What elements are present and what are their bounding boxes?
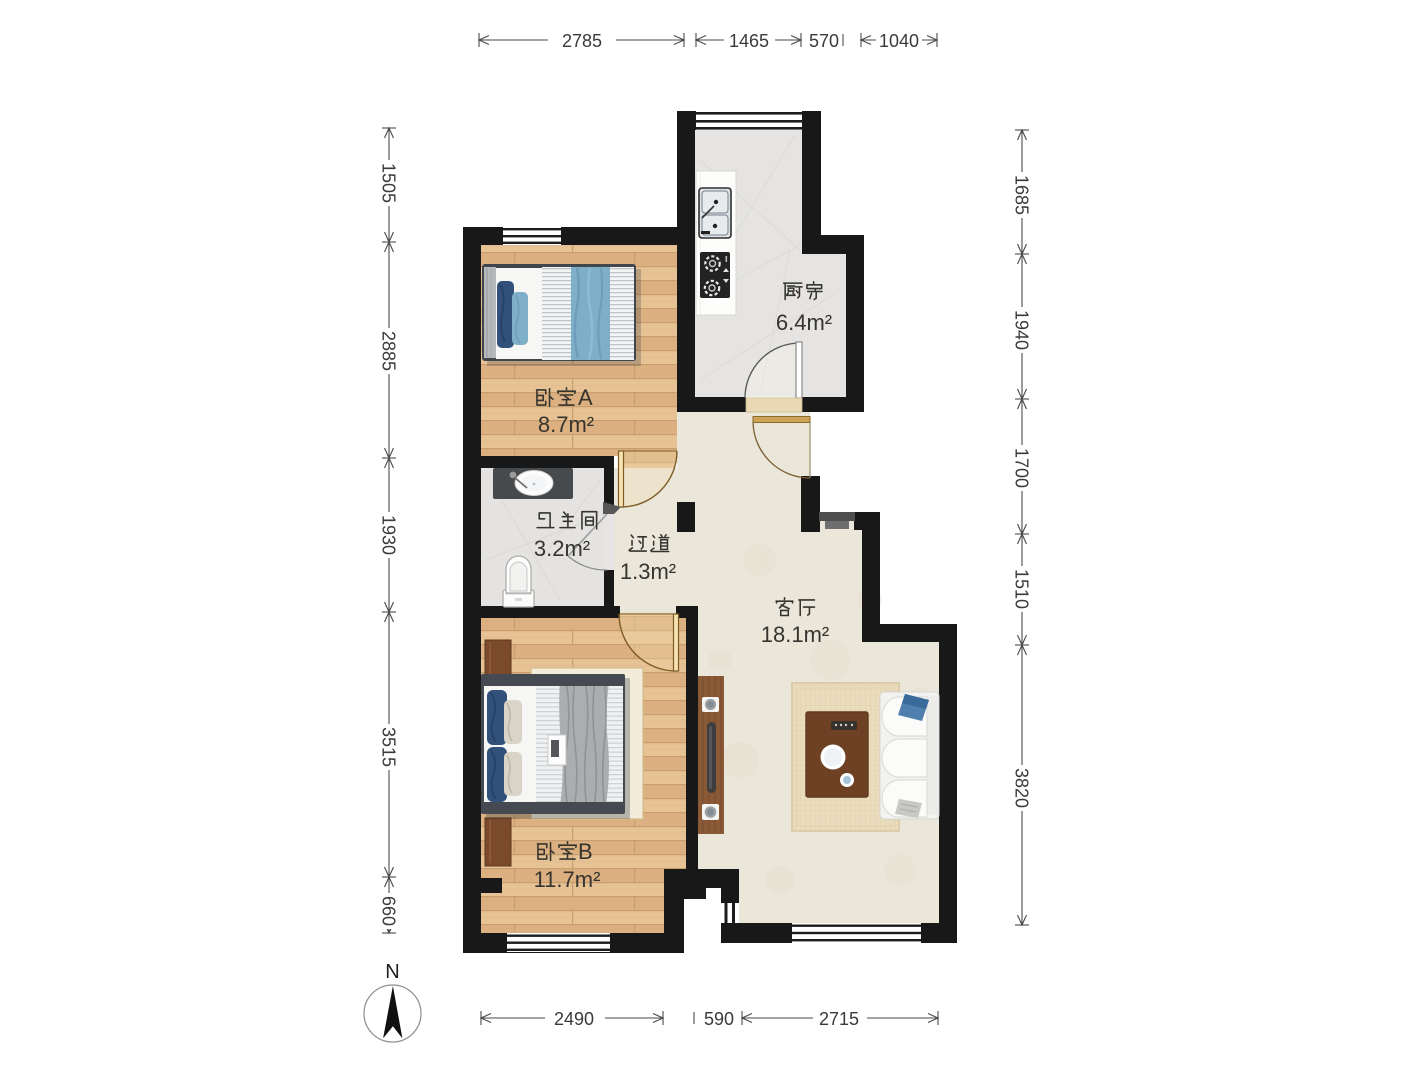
svg-text:1040: 1040 xyxy=(879,31,919,51)
svg-text:3820: 3820 xyxy=(1012,768,1032,808)
svg-text:11.7m²: 11.7m² xyxy=(534,867,601,892)
svg-text:1465: 1465 xyxy=(729,31,769,51)
svg-text:2885: 2885 xyxy=(379,331,399,371)
svg-text:1700: 1700 xyxy=(1012,448,1032,488)
svg-text:2490: 2490 xyxy=(554,1009,594,1029)
svg-text:570: 570 xyxy=(809,31,839,51)
svg-text:18.1m²: 18.1m² xyxy=(761,622,829,647)
svg-text:8.7m²: 8.7m² xyxy=(538,412,594,437)
svg-text:2785: 2785 xyxy=(562,31,602,51)
svg-text:6.4m²: 6.4m² xyxy=(776,310,832,335)
svg-text:1.3m²: 1.3m² xyxy=(620,559,676,584)
svg-text:3.2m²: 3.2m² xyxy=(534,536,590,561)
svg-text:1930: 1930 xyxy=(379,515,399,555)
svg-text:590: 590 xyxy=(704,1009,734,1029)
svg-text:N: N xyxy=(385,961,399,983)
svg-text:2715: 2715 xyxy=(819,1009,859,1029)
svg-text:1505: 1505 xyxy=(379,163,399,203)
svg-text:660: 660 xyxy=(379,896,399,926)
svg-text:3515: 3515 xyxy=(379,727,399,767)
svg-text:B: B xyxy=(578,839,593,864)
svg-text:1940: 1940 xyxy=(1012,310,1032,350)
svg-text:1685: 1685 xyxy=(1012,175,1032,215)
svg-text:1510: 1510 xyxy=(1012,569,1032,609)
svg-text:A: A xyxy=(578,385,593,410)
